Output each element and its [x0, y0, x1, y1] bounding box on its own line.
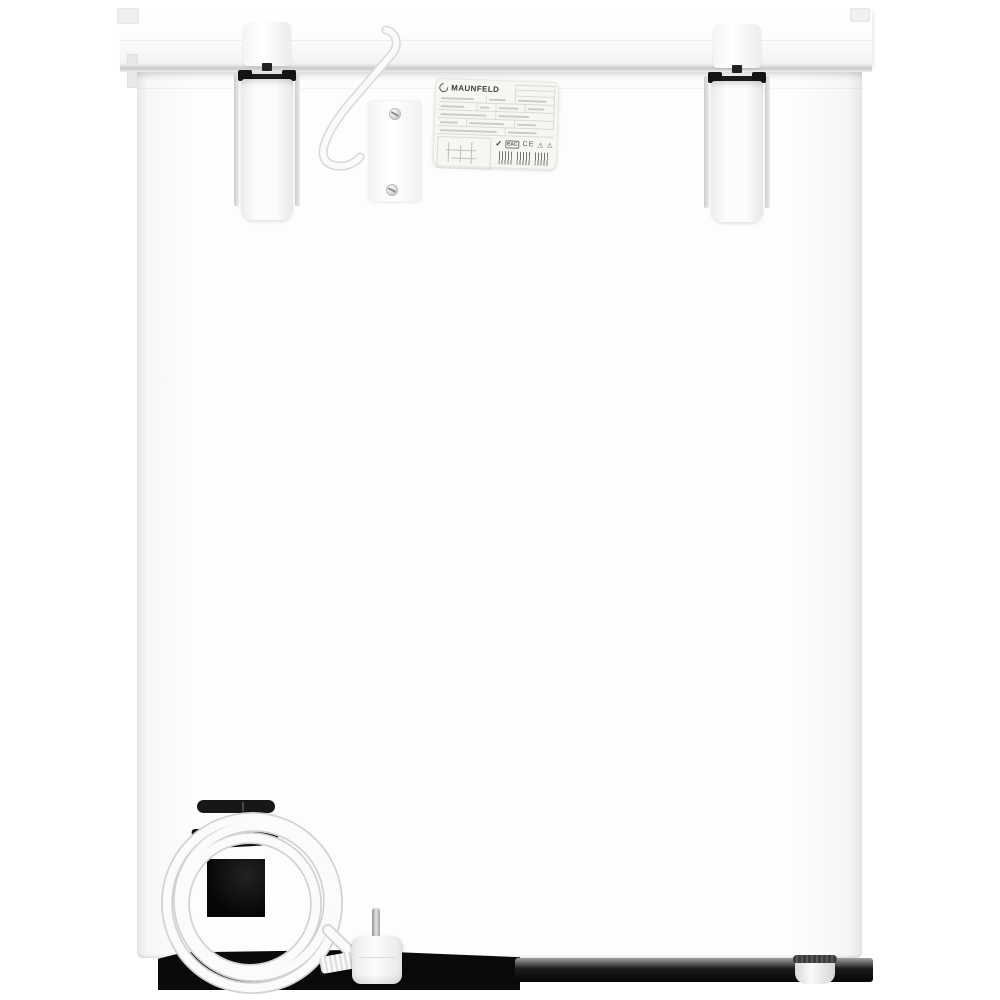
power-plug	[318, 905, 428, 987]
left-hinge-upper-cover	[243, 22, 291, 66]
right-hinge-lower-arm	[711, 81, 763, 222]
right-hinge-rail	[765, 76, 770, 208]
screw-icon	[389, 108, 401, 120]
conformity-marks: ✓ EAC CE ⚠ ⚠	[495, 138, 553, 151]
left-hinge-rail	[234, 74, 239, 206]
lid-right-tab	[850, 8, 870, 22]
screw-slot	[388, 187, 396, 192]
barcode-icon	[535, 152, 548, 165]
barcode-group	[499, 151, 553, 166]
foot-base	[795, 963, 835, 984]
hinge-nub	[732, 65, 742, 73]
rating-plate: MAUNFELD	[433, 78, 560, 170]
lid-left-tab	[117, 8, 139, 24]
spec-cell	[505, 128, 554, 138]
checkmark-icon: ✓	[495, 139, 502, 148]
plug-seam	[358, 957, 396, 958]
hinge-nub	[262, 63, 272, 71]
adjustable-foot	[793, 955, 837, 985]
left-hinge-lower-arm	[241, 79, 293, 220]
screw-slot	[391, 111, 399, 116]
screw-icon	[386, 184, 398, 196]
spec-cell	[438, 126, 506, 136]
maunfeld-ring-logo-icon	[437, 81, 450, 94]
barcode-icon	[517, 152, 530, 165]
ce-mark-icon: CE	[522, 141, 534, 148]
plug-body	[352, 936, 402, 984]
spec-table	[438, 94, 555, 138]
product-photo-chest-freezer-rear: MAUNFELD	[0, 0, 1000, 1000]
barcode-icon	[499, 151, 512, 164]
eac-mark-icon: EAC	[505, 140, 520, 149]
right-hinge	[704, 24, 770, 224]
rating-plate-footer: ✓ EAC CE ⚠ ⚠	[436, 136, 553, 172]
right-hinge-rail	[704, 76, 709, 208]
junction-box-cover	[368, 100, 422, 202]
coil-loops	[167, 818, 337, 988]
certification-area: ✓ EAC CE ⚠ ⚠	[494, 138, 553, 172]
right-hinge-upper-cover	[713, 24, 761, 68]
brand-name: MAUNFELD	[451, 83, 499, 94]
label-header-box	[515, 84, 555, 97]
warning-triangle-icon: ⚠	[537, 141, 544, 149]
wiring-diagram	[436, 136, 491, 170]
left-hinge	[234, 22, 300, 222]
warning-triangle-icon: ⚠	[546, 141, 553, 149]
